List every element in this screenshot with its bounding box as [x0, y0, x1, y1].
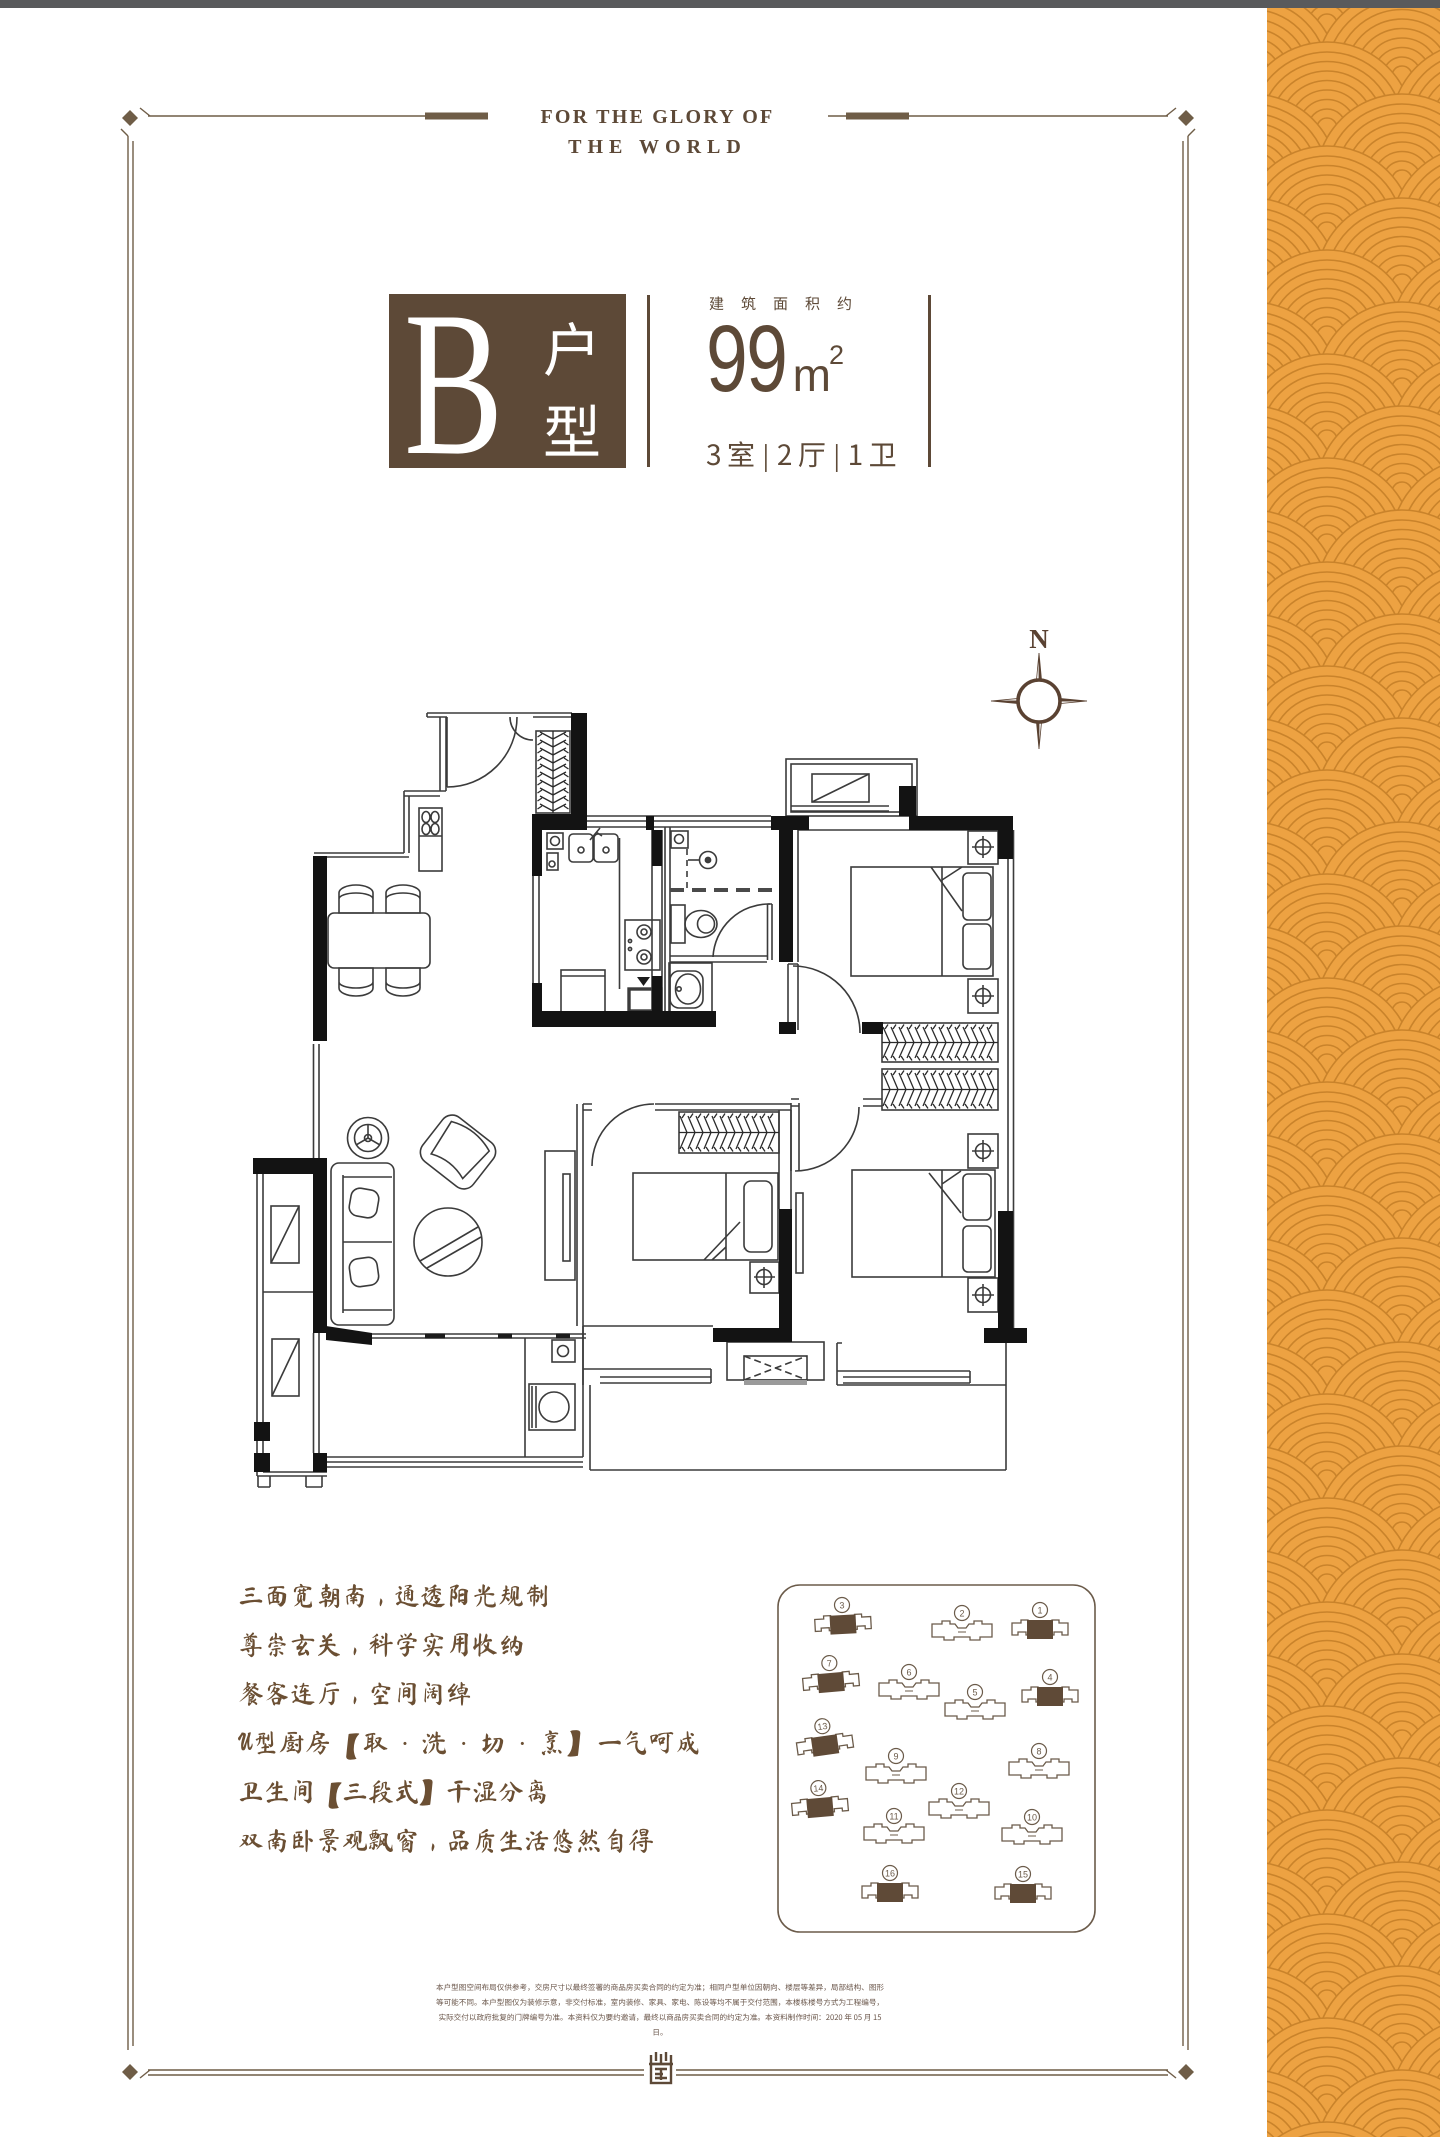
svg-text:3: 3 [839, 1600, 845, 1610]
svg-text:16: 16 [885, 1868, 895, 1878]
svg-text:10: 10 [1027, 1812, 1037, 1822]
svg-text:7: 7 [826, 1658, 832, 1668]
svg-text:15: 15 [1018, 1869, 1028, 1879]
svg-text:4: 4 [1047, 1672, 1052, 1682]
svg-text:14: 14 [813, 1783, 824, 1794]
svg-text:1: 1 [1037, 1605, 1042, 1615]
svg-text:13: 13 [817, 1721, 828, 1732]
svg-text:12: 12 [954, 1786, 964, 1796]
svg-text:5: 5 [972, 1687, 977, 1697]
svg-text:9: 9 [893, 1751, 898, 1761]
svg-text:8: 8 [1036, 1746, 1041, 1756]
svg-text:2: 2 [959, 1608, 964, 1618]
svg-text:11: 11 [889, 1811, 898, 1821]
svg-text:6: 6 [906, 1667, 911, 1677]
